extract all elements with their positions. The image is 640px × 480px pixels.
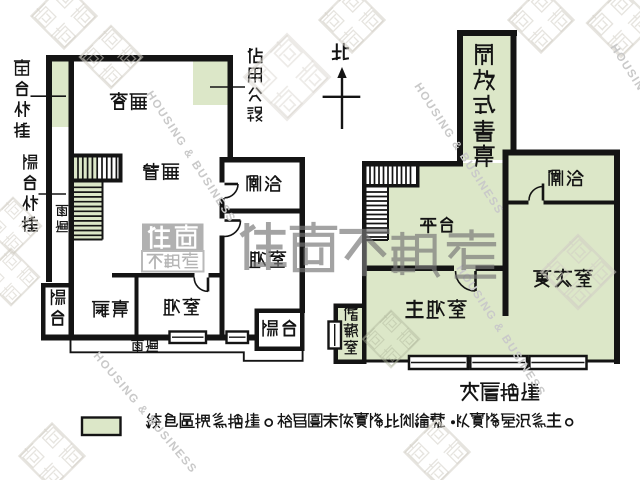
svg-text:HOUSING: HOUSING — [607, 42, 640, 102]
svg-text:HOUSING & BUSINESS: HOUSING & BUSINESS — [91, 350, 199, 476]
